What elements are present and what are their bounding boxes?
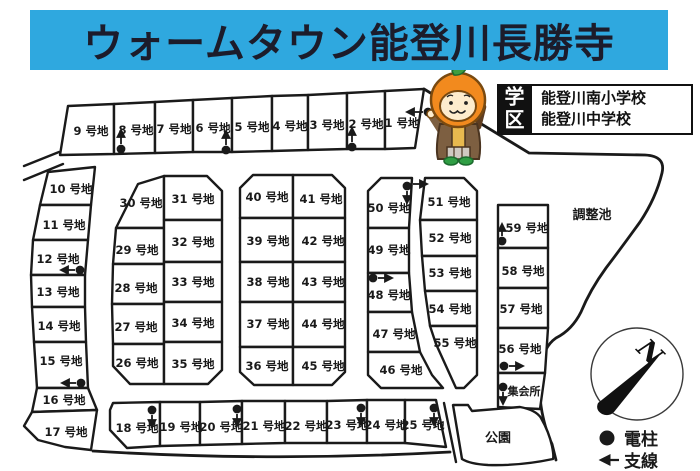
- page: { "title": { "text": "ウォームタウン能登川長勝寺" }, …: [0, 0, 700, 471]
- lot-5-label: 5 号地: [234, 120, 270, 134]
- road-edge-upper-left-1: [24, 152, 59, 166]
- lot-39-label: 39 号地: [246, 234, 290, 248]
- lot-28-label: 28 号地: [114, 281, 158, 295]
- compass: N: [591, 328, 683, 420]
- lot-10-label: 10 号地: [49, 182, 93, 196]
- lot-55-label: 55 号地: [433, 336, 477, 350]
- lot-8-label: 8 号地: [118, 123, 154, 137]
- lot-32-label: 32 号地: [171, 235, 215, 249]
- school-district-badge: 学区: [497, 84, 530, 135]
- lot-6-label: 6 号地: [195, 121, 231, 135]
- mascot-icon: [427, 66, 487, 165]
- hall-label: 集会所: [507, 384, 541, 398]
- map-bottom-boundary: [93, 451, 450, 457]
- lot-3-label: 3 号地: [309, 118, 345, 132]
- lot-42-label: 42 号地: [301, 234, 345, 248]
- pond-label: 調整池: [572, 207, 611, 223]
- lot-48-label: 48 号地: [367, 288, 411, 302]
- lot-15-label: 15 号地: [39, 354, 83, 368]
- lot-11-label: 11 号地: [42, 218, 86, 232]
- lot-25-label: 25 号地: [401, 418, 445, 432]
- lot-31-label: 31 号地: [171, 192, 215, 206]
- page-title: ウォームタウン能登川長勝寺: [83, 11, 615, 69]
- lot-7-label: 7 号地: [156, 122, 192, 136]
- lot-20-label: 20 号地: [199, 420, 243, 434]
- lot-45-label: 45 号地: [301, 359, 345, 373]
- lot-26-label: 26 号地: [115, 356, 159, 370]
- lot-34-label: 34 号地: [171, 316, 215, 330]
- lot-1-label: 1 号地: [384, 116, 420, 130]
- site-map: 9 号地 8 号地 7 号地 6 号地 5 号地 4 号地 3 号地 2 号地 …: [0, 0, 700, 471]
- lot-21-label: 21 号地: [242, 419, 286, 433]
- legend-pole-icon: [600, 431, 615, 446]
- junior-high-school-name: 能登川中学校: [541, 111, 687, 128]
- legend-wire-label: 支線: [624, 451, 658, 471]
- title-banner: ウォームタウン能登川長勝寺: [30, 10, 668, 70]
- lot-2-label: 2 号地: [348, 117, 384, 131]
- lot-29-label: 29 号地: [115, 243, 159, 257]
- lot-4-label: 4 号地: [272, 119, 308, 133]
- lot-56-label: 56 号地: [498, 342, 542, 356]
- legend-pole-label: 電柱: [624, 429, 658, 450]
- lot-50-label: 50 号地: [367, 201, 411, 215]
- lot-53-label: 53 号地: [428, 266, 472, 280]
- lot-47-label: 47 号地: [372, 327, 416, 341]
- elementary-school-name: 能登川南小学校: [541, 90, 687, 107]
- lot-40-label: 40 号地: [245, 190, 289, 204]
- lot-59-label: 59 号地: [505, 221, 549, 235]
- lot-30-label: 30 号地: [119, 196, 163, 210]
- lot-57-label: 57 号地: [499, 302, 543, 316]
- lot-35-label: 35 号地: [171, 357, 215, 371]
- lot-14-label: 14 号地: [37, 319, 81, 333]
- lot-12-label: 12 号地: [36, 252, 80, 266]
- lot-43-label: 43 号地: [301, 275, 345, 289]
- lot-9-label: 9 号地: [73, 124, 109, 138]
- lot-17-label: 17 号地: [44, 425, 88, 439]
- lot-38-label: 38 号地: [246, 275, 290, 289]
- lot-46-label: 46 号地: [379, 363, 423, 377]
- lot-51-label: 51 号地: [427, 195, 471, 209]
- lot-49-label: 49 号地: [367, 243, 411, 257]
- school-district-box: 学区 能登川南小学校 能登川中学校: [497, 84, 693, 135]
- compass-n-label: N: [630, 333, 670, 373]
- lot-37-label: 37 号地: [246, 317, 290, 331]
- park-label: 公園: [485, 430, 511, 446]
- lot-44-label: 44 号地: [301, 317, 345, 331]
- lot-58-label: 58 号地: [501, 264, 545, 278]
- lot-13-label: 13 号地: [36, 285, 80, 299]
- legend: 電柱 支線: [600, 429, 659, 471]
- lot-18-label: 18 号地: [115, 421, 159, 435]
- lot-36-label: 36 号地: [245, 359, 289, 373]
- lot-41-label: 41 号地: [299, 192, 343, 206]
- lot-54-label: 54 号地: [428, 302, 472, 316]
- lot-52-label: 52 号地: [428, 231, 472, 245]
- lot-27-label: 27 号地: [114, 320, 158, 334]
- school-district-names: 能登川南小学校 能登川中学校: [530, 84, 693, 135]
- lot-33-label: 33 号地: [171, 275, 215, 289]
- lot-23-label: 23 号地: [325, 418, 369, 432]
- lot-22-label: 22 号地: [284, 419, 328, 433]
- lot-19-label: 19 号地: [159, 420, 203, 434]
- lot-16-label: 16 号地: [42, 393, 86, 407]
